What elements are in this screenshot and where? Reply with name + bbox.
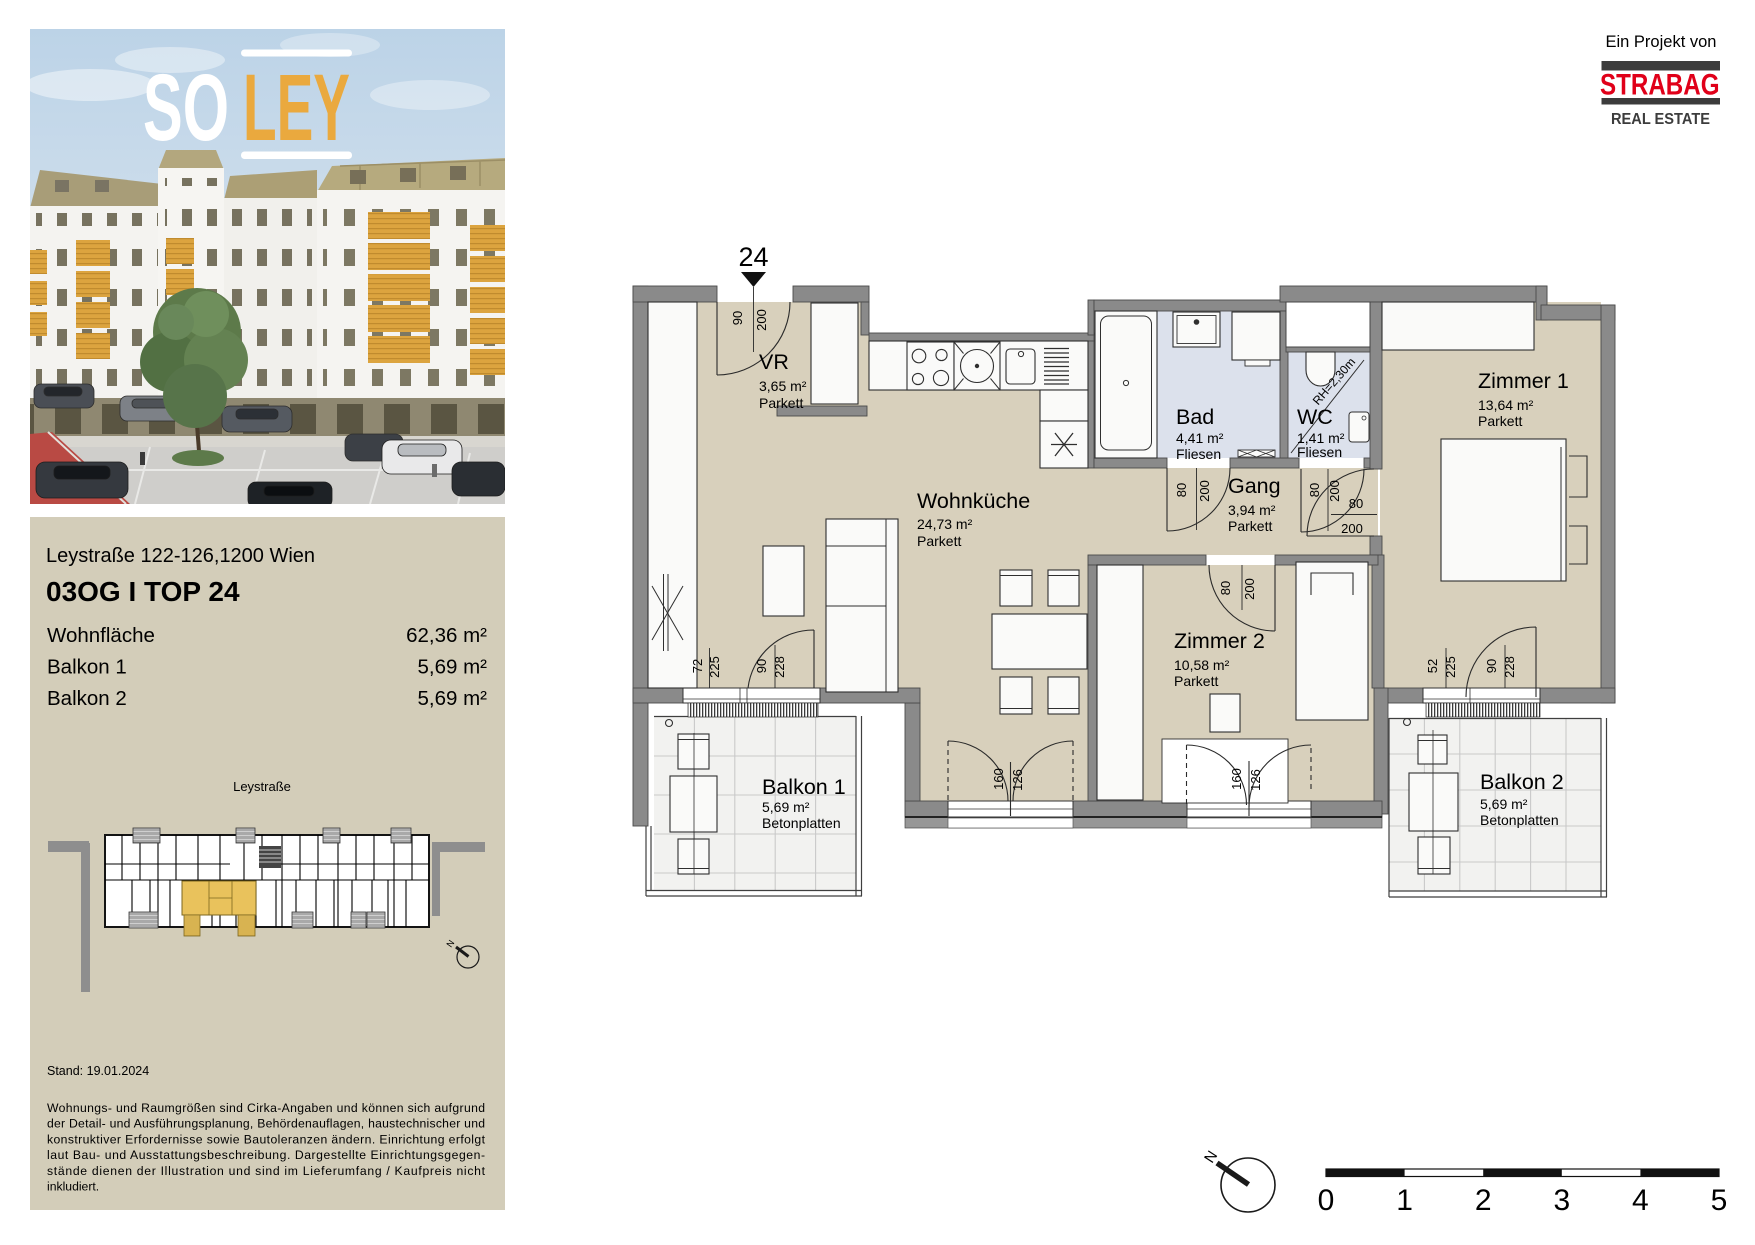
- svg-text:Leystraße: Leystraße: [233, 779, 291, 794]
- svg-text:Parkett: Parkett: [1478, 413, 1522, 429]
- svg-text:VR: VR: [759, 350, 789, 374]
- svg-text:Parkett: Parkett: [1174, 673, 1218, 689]
- svg-text:Betonplatten: Betonplatten: [1480, 812, 1559, 828]
- svg-text:STRABAG: STRABAG: [1600, 69, 1720, 102]
- svg-text:Parkett: Parkett: [917, 533, 961, 549]
- svg-text:Balkon 2: Balkon 2: [1480, 770, 1564, 794]
- svg-text:90: 90: [730, 311, 745, 325]
- svg-text:Gang: Gang: [1228, 474, 1281, 498]
- svg-text:200: 200: [1242, 578, 1257, 600]
- svg-text:Ein Projekt von: Ein Projekt von: [1606, 33, 1717, 51]
- svg-text:Stand: 19.01.2024: Stand: 19.01.2024: [47, 1064, 149, 1078]
- svg-text:126: 126: [1248, 769, 1263, 791]
- svg-text:2: 2: [1475, 1184, 1492, 1217]
- svg-text:72: 72: [690, 659, 705, 673]
- svg-text:3,94 m²: 3,94 m²: [1228, 502, 1276, 518]
- svg-text:4,41 m²: 4,41 m²: [1176, 430, 1224, 446]
- svg-text:3: 3: [1553, 1184, 1570, 1217]
- svg-text:Balkon 2: Balkon 2: [47, 687, 127, 710]
- svg-text:stände dienen der Illustration: stände dienen der Illustration und sind …: [47, 1164, 486, 1178]
- svg-text:Bad: Bad: [1176, 405, 1214, 429]
- svg-text:Balkon 1: Balkon 1: [47, 656, 127, 679]
- svg-text:225: 225: [1443, 656, 1458, 678]
- svg-text:Balkon 1: Balkon 1: [762, 775, 846, 799]
- svg-text:Wohnungs- und Raumgrößen sind: Wohnungs- und Raumgrößen sind Cirka-Anga…: [47, 1101, 485, 1115]
- svg-text:WC: WC: [1297, 405, 1333, 429]
- svg-text:52: 52: [1425, 659, 1440, 673]
- svg-text:90: 90: [754, 659, 769, 673]
- svg-text:Parkett: Parkett: [1228, 518, 1272, 534]
- svg-text:24: 24: [738, 242, 768, 272]
- svg-text:Betonplatten: Betonplatten: [762, 815, 841, 831]
- svg-text:der Detail- und Ausführungspla: der Detail- und Ausführungsplanung, Behö…: [47, 1117, 485, 1131]
- svg-text:13,64 m²: 13,64 m²: [1478, 397, 1534, 413]
- svg-text:0: 0: [1318, 1184, 1335, 1217]
- svg-text:Fliesen: Fliesen: [1176, 446, 1221, 462]
- svg-text:Fliesen: Fliesen: [1297, 444, 1342, 460]
- svg-text:200: 200: [1327, 480, 1342, 502]
- svg-text:inkludiert.: inkludiert.: [47, 1180, 99, 1194]
- svg-text:3,65 m²: 3,65 m²: [759, 378, 807, 394]
- svg-text:konstruktiver Erfordernisse so: konstruktiver Erfordernisse sowie Bautol…: [47, 1132, 486, 1146]
- svg-text:03OG I TOP 24: 03OG I TOP 24: [46, 576, 240, 607]
- svg-text:160: 160: [991, 768, 1006, 790]
- svg-text:1: 1: [1396, 1184, 1413, 1217]
- svg-text:Zimmer 2: Zimmer 2: [1174, 629, 1265, 653]
- svg-text:Leystraße 122-126,1200 Wien: Leystraße 122-126,1200 Wien: [46, 545, 315, 567]
- svg-text:5,69 m²: 5,69 m²: [418, 687, 488, 710]
- svg-text:200: 200: [1197, 480, 1212, 502]
- svg-text:Wohnküche: Wohnküche: [917, 489, 1030, 513]
- svg-text:80: 80: [1349, 496, 1363, 511]
- svg-text:REAL ESTATE: REAL ESTATE: [1611, 111, 1710, 128]
- svg-text:228: 228: [1502, 656, 1517, 678]
- svg-text:SO: SO: [143, 55, 229, 161]
- svg-text:80: 80: [1218, 581, 1233, 595]
- svg-text:Parkett: Parkett: [759, 395, 803, 411]
- svg-text:80: 80: [1174, 483, 1189, 497]
- svg-text:Wohnfläche: Wohnfläche: [47, 624, 155, 647]
- svg-text:10,58 m²: 10,58 m²: [1174, 657, 1230, 673]
- svg-text:228: 228: [772, 656, 787, 678]
- svg-text:200: 200: [754, 309, 769, 331]
- svg-text:200: 200: [1341, 521, 1363, 536]
- svg-text:62,36 m²: 62,36 m²: [406, 624, 487, 647]
- svg-text:Zimmer 1: Zimmer 1: [1478, 369, 1569, 393]
- svg-text:4: 4: [1632, 1184, 1649, 1217]
- svg-text:160: 160: [1229, 768, 1244, 790]
- svg-text:5,69 m²: 5,69 m²: [762, 799, 810, 815]
- svg-text:laut Bau- und Ausstattungsbesc: laut Bau- und Ausstattungsbeschreibung. …: [47, 1148, 485, 1162]
- svg-text:225: 225: [707, 656, 722, 678]
- svg-text:5,69 m²: 5,69 m²: [418, 656, 488, 679]
- svg-text:90: 90: [1484, 659, 1499, 673]
- svg-text:126: 126: [1010, 769, 1025, 791]
- svg-text:5: 5: [1711, 1184, 1728, 1217]
- svg-text:24,73 m²: 24,73 m²: [917, 516, 973, 532]
- svg-text:5,69 m²: 5,69 m²: [1480, 796, 1528, 812]
- svg-text:LEY: LEY: [243, 55, 350, 161]
- svg-text:80: 80: [1307, 483, 1322, 497]
